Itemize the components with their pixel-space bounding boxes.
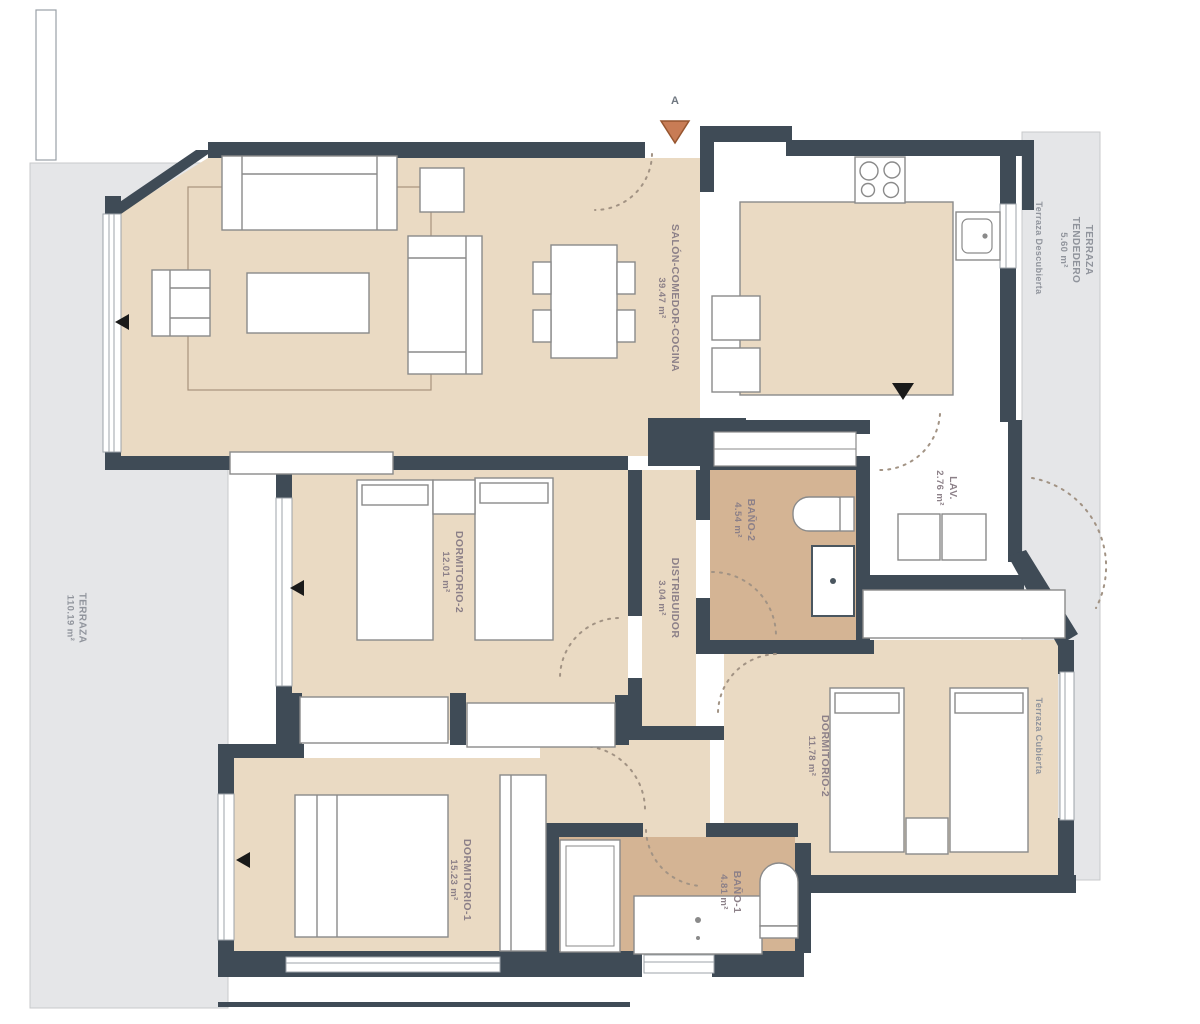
floor-plan: A SALÓN-COMEDOR-COCINA 39.47 m² DORMITOR… — [0, 0, 1200, 1024]
wall-segment — [628, 470, 642, 616]
nightstand — [906, 818, 948, 854]
laundry-appliances — [898, 514, 986, 560]
vanity-drain — [696, 936, 700, 940]
window — [286, 957, 500, 972]
wall-segment — [700, 640, 874, 654]
wall-segment — [795, 875, 1076, 893]
toilet-tank — [840, 497, 854, 531]
kitchen-island — [740, 202, 953, 395]
shower-tray — [560, 840, 620, 952]
washing-machine — [898, 514, 940, 560]
lounge-chair — [408, 236, 482, 374]
wall-segment — [1022, 140, 1034, 210]
bed — [475, 478, 553, 640]
armchair — [152, 270, 210, 336]
stool — [712, 348, 760, 392]
window — [1000, 204, 1016, 268]
wall-segment — [1058, 640, 1074, 674]
wardrobe — [500, 775, 546, 951]
window — [218, 794, 234, 940]
wall-segment — [1000, 266, 1016, 422]
floor-plan-drawing — [0, 0, 1200, 1024]
wall-segment — [545, 823, 559, 955]
vanity — [634, 896, 762, 954]
wardrobe — [467, 703, 615, 747]
dining-chair — [617, 262, 635, 294]
wall-segment — [1058, 818, 1074, 878]
wardrobe — [863, 590, 1065, 638]
floor-hall — [642, 470, 696, 740]
wall-segment — [700, 126, 792, 142]
terrace-edge-line — [218, 1002, 630, 1007]
dining-chair — [533, 310, 551, 342]
entrance-triangle-icon — [661, 121, 689, 143]
wall-segment — [218, 744, 234, 796]
window — [1060, 672, 1074, 820]
window — [103, 214, 121, 452]
double-bed — [295, 795, 448, 937]
stool — [712, 296, 760, 340]
wall-segment — [860, 575, 1024, 591]
toilet — [760, 863, 798, 926]
coffee-table — [247, 273, 369, 333]
wardrobe — [300, 697, 448, 743]
wall-segment — [706, 823, 798, 837]
kitchen — [712, 157, 1000, 466]
sofa — [222, 156, 397, 230]
bedroom1-furniture — [295, 775, 546, 951]
wall-segment — [615, 695, 629, 745]
dryer — [942, 514, 986, 560]
wall-segment — [700, 142, 714, 192]
bed — [357, 480, 433, 640]
wall-segment — [712, 951, 804, 977]
wall-segment — [696, 470, 710, 520]
nightstand — [433, 480, 475, 514]
shower-drain — [830, 578, 836, 584]
sideboard — [230, 452, 393, 474]
neighbor-wall-column — [36, 10, 56, 160]
entrance-marker-label: A — [671, 95, 679, 107]
vanity-faucet — [695, 917, 701, 923]
door-arc-laundry — [880, 414, 940, 470]
window — [644, 955, 714, 973]
wall-segment — [1008, 420, 1022, 562]
wall-segment — [559, 823, 643, 837]
dining-chair — [617, 310, 635, 342]
sink-faucet — [982, 233, 987, 238]
wall-segment — [450, 693, 466, 745]
wall-segment — [786, 140, 1022, 156]
dining-table — [551, 245, 617, 358]
wall-segment — [628, 726, 724, 740]
toilet-base — [760, 926, 798, 938]
side-table — [420, 168, 464, 212]
wall-segment — [1000, 156, 1016, 206]
window — [276, 498, 292, 686]
dining-chair — [533, 262, 551, 294]
